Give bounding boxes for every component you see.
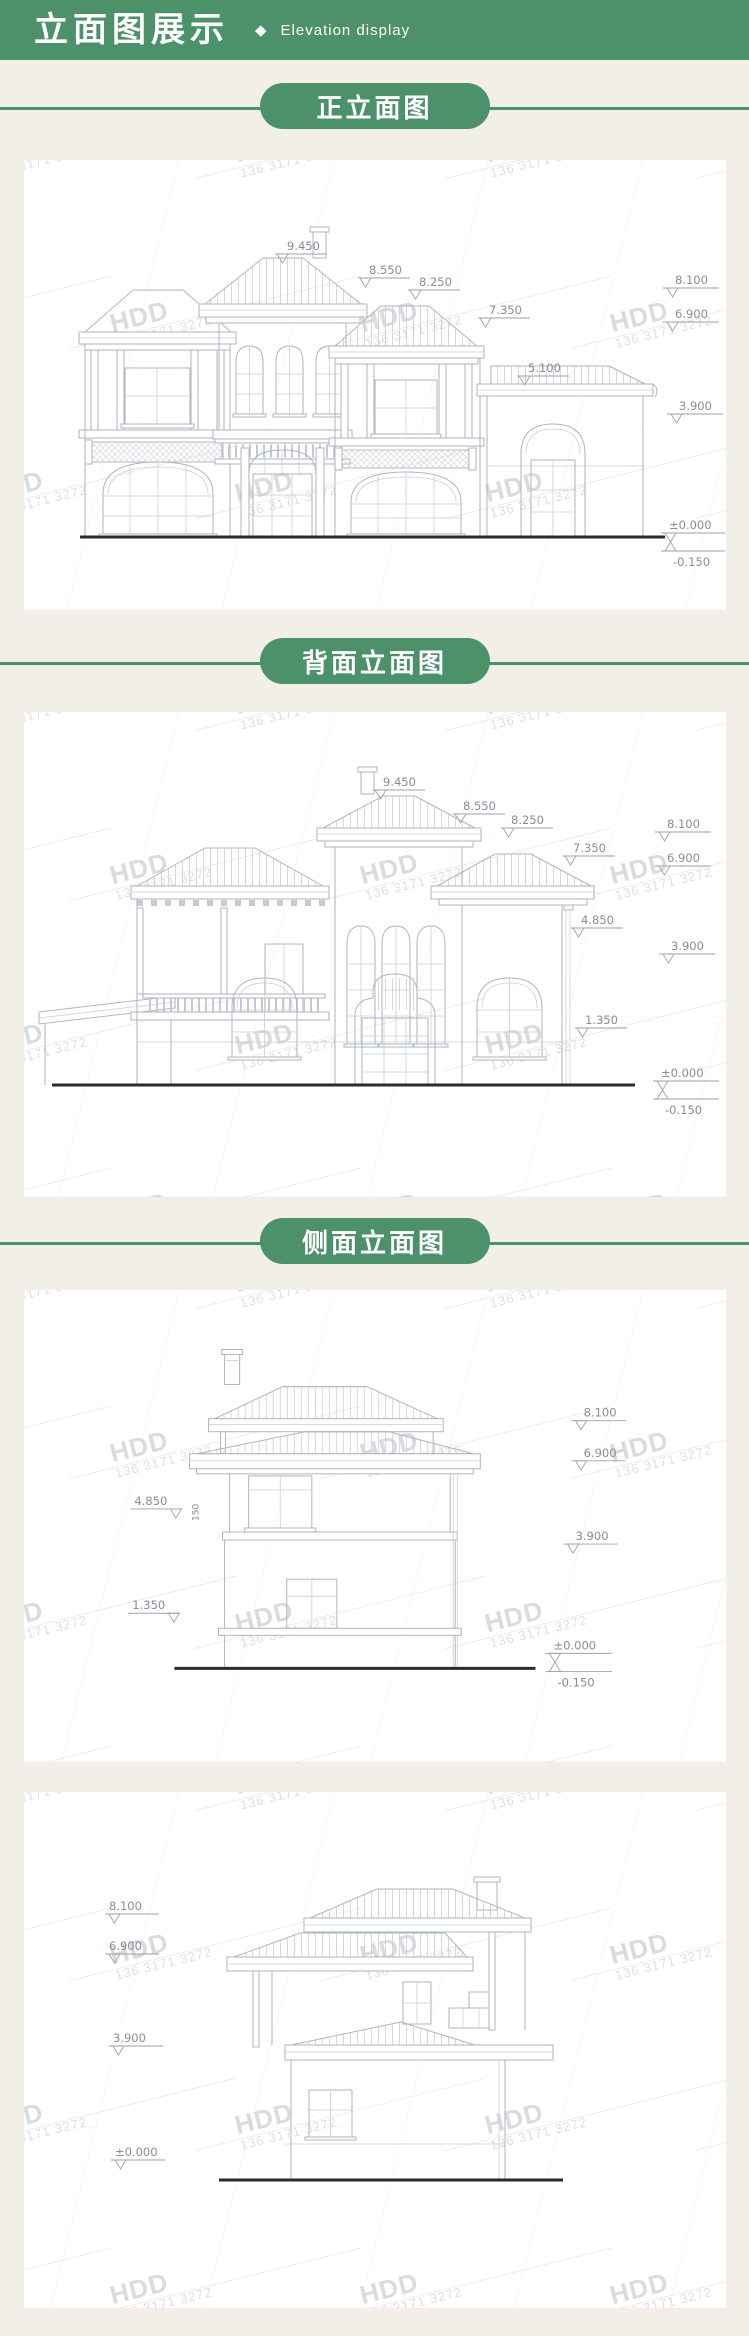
dim-1350: 1.350 [128, 1598, 180, 1622]
dim-label: 7.350 [489, 303, 522, 317]
level-0000: ±0.000 [653, 1066, 719, 1099]
dim-label: 9.450 [383, 775, 416, 789]
level-0000: ±0.000 [545, 1638, 611, 1671]
dim-label: 3.900 [679, 399, 712, 413]
dim-label: -0.150 [673, 555, 710, 569]
dim-label: 3.900 [575, 1529, 608, 1543]
level-minus150: -0.150 [665, 1103, 702, 1117]
front-roof [227, 1933, 473, 1971]
dim-label: 4.850 [581, 913, 614, 927]
dim-label: 8.550 [463, 799, 496, 813]
section-front-elevation: 正立面图 HDD136 3171 3272HDD136 3171 3272HDD… [0, 83, 749, 610]
dim-label: 8.100 [675, 273, 708, 287]
level-6900: 6.900 [663, 307, 719, 331]
page-title: 立面图展示 [34, 13, 229, 47]
left-wing [131, 848, 329, 1085]
level-8100: 8.100 [571, 1406, 625, 1430]
dim-label: 6.900 [583, 1446, 616, 1460]
front-elevation-panel: HDD136 3171 3272HDD136 3171 3272HDD136 3… [24, 160, 726, 610]
center-door [355, 974, 435, 1085]
dim-label: 8.100 [583, 1406, 616, 1420]
section-pill-back: 背面立面图 [260, 638, 490, 684]
side-elevation-drawing-1: 4.850150 1.350 8.100 6.900 3.900 ±0.000 … [24, 1290, 726, 1762]
section-pill-side: 侧面立面图 [260, 1218, 490, 1264]
section-divider-side: 侧面立面图 [0, 1218, 749, 1264]
level-8100: 8.100 [655, 817, 711, 841]
dim-label: 3.900 [113, 2031, 146, 2045]
porch-roof [285, 2022, 553, 2060]
dim-label: 9.450 [287, 239, 320, 253]
level-minus150: -0.150 [557, 1675, 594, 1689]
level-0000: ±0.000 [111, 2145, 165, 2169]
dim-label: 8.250 [511, 813, 544, 827]
page-subtitle: Elevation display [281, 22, 411, 39]
dim-8250: 8.250 [501, 813, 553, 837]
header: 立面图展示 ◆ Elevation display [0, 0, 749, 60]
dim-8550: 8.550 [358, 263, 410, 287]
dim-tick: 150 [191, 1504, 201, 1521]
level-3900: 3.900 [563, 1529, 617, 1553]
section-divider-back: 背面立面图 [0, 638, 749, 684]
dim-label: 5.100 [528, 361, 561, 375]
dim-7350: 7.350 [478, 303, 530, 327]
section-label: 侧面立面图 [302, 1223, 447, 1260]
side-elevation-panel-2: HDD136 3171 3272HDD136 3171 3272HDD136 3… [24, 1792, 726, 2308]
level-6900: 6.900 [105, 1939, 159, 1963]
right-wing [329, 306, 484, 537]
level-3900: 3.900 [659, 939, 715, 963]
dim-label: 6.900 [675, 307, 708, 321]
first-floor [218, 1540, 461, 1668]
level-3900: 3.900 [667, 399, 723, 423]
front-roof [189, 1432, 480, 1474]
dim-label: 8.250 [419, 275, 452, 289]
level-3900: 3.900 [109, 2031, 163, 2055]
left-wing [79, 290, 236, 537]
center-tower [317, 767, 481, 1085]
dim-9450: 9.450 [373, 775, 425, 799]
level-0000: ±0.000 [661, 518, 725, 551]
section-divider-front: 正立面图 [0, 83, 749, 129]
section-label: 正立面图 [316, 88, 432, 125]
dim-label: 6.900 [109, 1939, 142, 1953]
second-floor [222, 1474, 457, 1669]
dim-label: 8.550 [369, 263, 402, 277]
dim-label: -0.150 [665, 1103, 702, 1117]
back-elevation-panel: HDD136 3171 3272HDD136 3171 3272HDD136 3… [24, 712, 726, 1197]
dim-label: 1.350 [585, 1013, 618, 1027]
level-8100: 8.100 [105, 1899, 159, 1923]
level-6900: 6.900 [655, 851, 711, 875]
level-minus150: -0.150 [673, 555, 710, 569]
dim-label: ±0.000 [661, 1066, 704, 1080]
side-elevation-panel-1: HDD136 3171 3272HDD136 3171 3272HDD136 3… [24, 1290, 726, 1762]
side-elevation-drawing-2: 8.100 6.900 3.900 ±0.000 [24, 1792, 726, 2308]
dim-label: ±0.000 [553, 1638, 596, 1652]
right-wing [431, 854, 594, 1085]
dim-4850: 4.850 [571, 913, 623, 937]
section-pill-front: 正立面图 [260, 83, 490, 129]
dim-4850: 4.850150 [130, 1494, 201, 1521]
back-elevation-drawing: 9.450 8.550 8.250 7.350 4.850 1.350 8.10… [24, 712, 726, 1197]
garage-wing [39, 996, 175, 1085]
dim-label: 7.350 [573, 841, 606, 855]
dim-7350: 7.350 [563, 841, 615, 865]
dim-label: 1.350 [132, 1598, 165, 1612]
dim-8550: 8.550 [453, 799, 505, 823]
dim-label: ±0.000 [115, 2145, 158, 2159]
level-8100: 8.100 [663, 273, 719, 297]
right-annex [477, 366, 657, 537]
section-label: 背面立面图 [302, 643, 447, 680]
section-back-elevation: 背面立面图 HDD136 3171 3272HDD136 3171 3272HD… [0, 638, 749, 1197]
dim-label: 3.900 [671, 939, 704, 953]
dim-1350: 1.350 [575, 1013, 627, 1037]
dim-label: -0.150 [557, 1675, 594, 1689]
dim-label: 8.100 [667, 817, 700, 831]
level-6900: 6.900 [571, 1446, 625, 1470]
dim-label: 4.850 [134, 1494, 167, 1508]
dim-label: 8.100 [109, 1899, 142, 1913]
diamond-icon: ◆ [255, 21, 267, 39]
dim-label: 6.900 [667, 851, 700, 865]
dim-8250: 8.250 [408, 275, 460, 299]
page: 立面图展示 ◆ Elevation display 正立面图 HDD136 31… [0, 0, 749, 2336]
front-elevation-drawing: 9.450 8.550 8.250 7.350 5.100 8.100 6.90… [24, 160, 726, 610]
first-floor [285, 2060, 505, 2180]
dim-label: ±0.000 [669, 518, 712, 532]
section-side-elevation: 侧面立面图 HDD136 3171 3272HDD136 3171 3272HD… [0, 1218, 749, 2308]
